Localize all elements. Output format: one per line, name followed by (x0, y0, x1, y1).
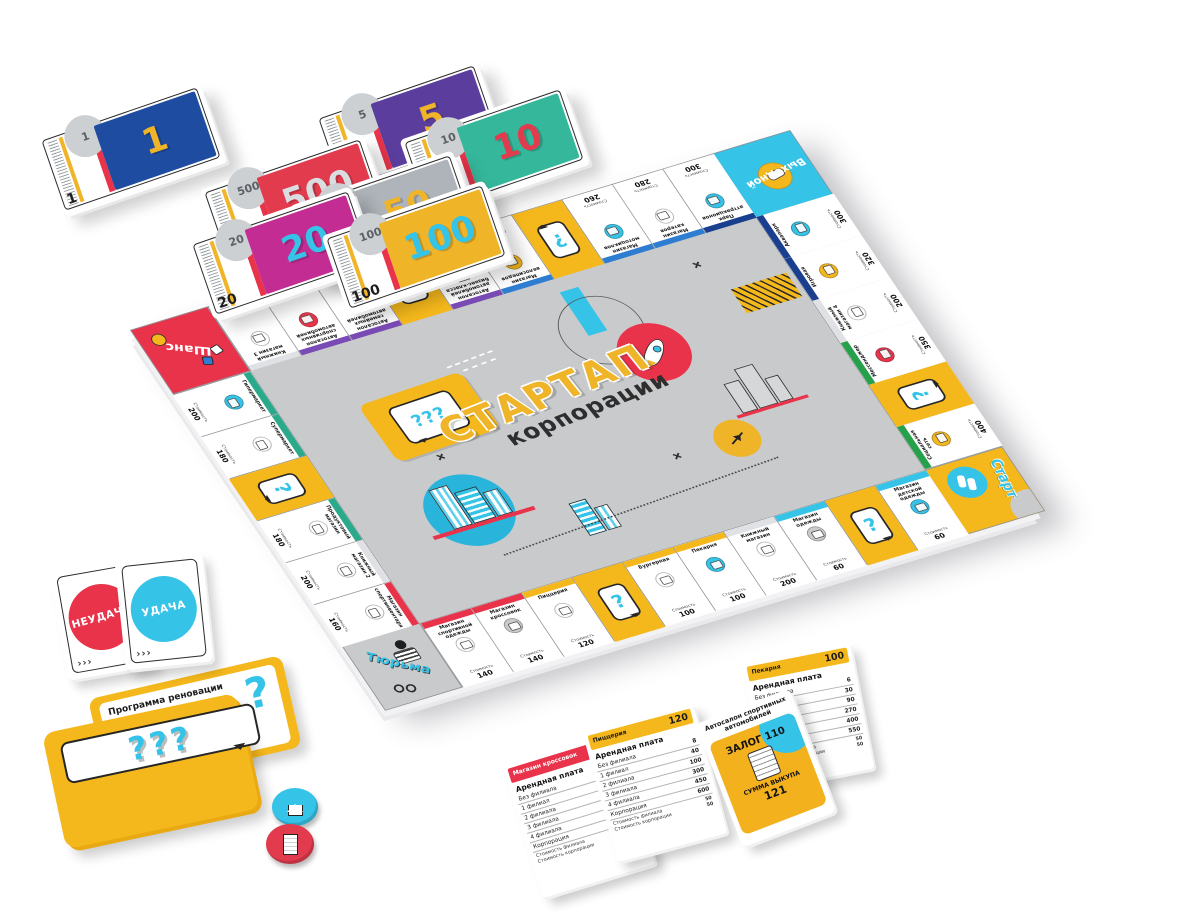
question-bubble-icon: ? (895, 377, 949, 411)
board-title: СТАРТАП корпорации (428, 335, 676, 469)
chevrons-decoration: ››› (136, 648, 152, 661)
bill-panel: 1 (93, 91, 216, 190)
scene: Шанс Выходной Тюрьма Старт Книжный магаз… (0, 0, 1200, 915)
property-name: Пиццерия (592, 730, 627, 745)
corp-cost-value: 50 (856, 742, 864, 748)
branch-token[interactable] (272, 788, 318, 826)
chevrons-decoration: ››› (77, 656, 94, 670)
question-mark: ? (907, 386, 935, 402)
chance-card-back[interactable]: ??? (42, 693, 260, 850)
rent-row-value: 6 (846, 677, 851, 684)
rent-row-value: 550 (848, 726, 861, 734)
luck-card[interactable]: УДАЧА ››› (114, 552, 213, 671)
denomination-large: 100 (399, 208, 481, 270)
property-name: Пекарня (751, 665, 781, 677)
rent-row-value: 30 (844, 687, 853, 694)
question-bubble-icon: ? (255, 472, 309, 506)
triple-question-mark: ??? (125, 718, 196, 769)
question-bubble-icon: ??? (59, 702, 261, 784)
rent-row-value: 450 (694, 776, 707, 785)
cost-value: 60 (933, 532, 948, 542)
rent-row-value: 400 (846, 716, 859, 724)
question-bubble-icon: ? (595, 582, 644, 622)
question-mark: ? (268, 481, 296, 497)
denomination-large: 1 (137, 118, 173, 164)
dash-decoration (447, 350, 493, 368)
x-mark-decoration (435, 453, 447, 462)
rent-row-value: 90 (846, 696, 855, 703)
cost-value: 60 (832, 562, 847, 572)
hatched-yellow-bar (731, 273, 803, 314)
x-mark-decoration (671, 452, 683, 461)
luck-circle: УДАЧА (125, 570, 203, 648)
rent-row-value: 270 (844, 706, 857, 714)
question-bubble-icon: ? (847, 505, 896, 545)
corp-cost-value: 50 (706, 802, 714, 809)
running-people-icon (940, 462, 995, 502)
building-icon (283, 834, 298, 855)
rent-row-value: 100 (689, 757, 702, 766)
question-mark: ? (547, 229, 570, 251)
question-bubble-icon: ? (534, 220, 583, 260)
property-price: 120 (667, 711, 689, 727)
rent-row-value: 600 (697, 786, 710, 795)
question-mark: ? (607, 591, 630, 613)
house-icon (288, 805, 303, 816)
rent-row-value: 40 (690, 747, 699, 755)
handcuffs-icon (392, 683, 406, 694)
rent-row-value: 8 (692, 737, 697, 744)
question-mark: ? (860, 515, 883, 537)
handcuffs-icon (404, 683, 418, 694)
denomination-large: 10 (489, 116, 548, 170)
rent-row-value: 300 (692, 766, 705, 775)
corner-label: Старт (986, 458, 1022, 499)
yellow-arrow-circle (705, 414, 771, 462)
corporation-token[interactable] (266, 824, 314, 864)
money-1-stack[interactable]: 1 1 1 (36, 82, 225, 216)
x-mark-decoration (691, 261, 703, 270)
arrow-icon (732, 432, 744, 444)
corner-label: Шанс (165, 341, 212, 359)
property-price: 100 (824, 650, 846, 665)
